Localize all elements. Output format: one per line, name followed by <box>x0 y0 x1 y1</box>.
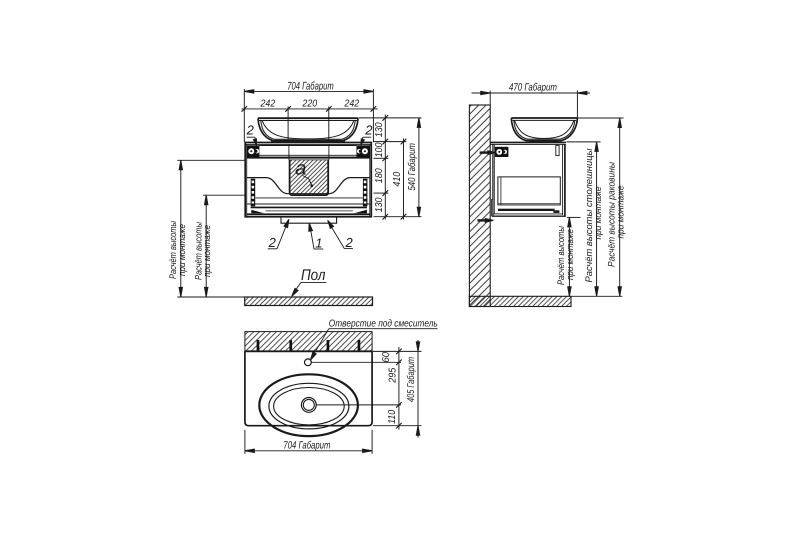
svg-text:при монтаже: при монтаже <box>202 225 213 277</box>
svg-text:2: 2 <box>344 235 353 250</box>
svg-text:704 Габарит: 704 Габарит <box>287 80 334 92</box>
svg-text:130: 130 <box>374 122 385 137</box>
svg-text:100: 100 <box>374 142 385 157</box>
svg-text:180: 180 <box>374 168 385 183</box>
svg-text:Пол: Пол <box>301 267 326 284</box>
svg-text:110: 110 <box>387 410 398 424</box>
svg-text:295: 295 <box>387 367 398 383</box>
svg-text:2: 2 <box>268 235 277 250</box>
svg-text:Отверстие под смеситель: Отверстие под смеситель <box>329 318 438 329</box>
svg-text:242: 242 <box>344 99 360 110</box>
svg-text:405 Габарит: 405 Габарит <box>406 357 417 402</box>
svg-text:410: 410 <box>392 171 403 186</box>
svg-text:704 Габарит: 704 Габарит <box>283 440 330 452</box>
svg-text:2: 2 <box>364 123 373 138</box>
svg-text:470 Габарит: 470 Габарит <box>509 82 557 94</box>
svg-text:при монтаже: при монтаже <box>177 224 188 276</box>
svg-text:540 Габарит: 540 Габарит <box>407 143 418 191</box>
svg-text:при монтаже: при монтаже <box>616 186 627 239</box>
svg-text:220: 220 <box>302 99 318 110</box>
svg-text:при монтаже: при монтаже <box>593 187 604 240</box>
svg-text:при монтаже: при монтаже <box>565 229 576 280</box>
svg-text:60: 60 <box>381 352 392 363</box>
svg-text:1: 1 <box>315 236 322 251</box>
svg-text:130: 130 <box>374 197 385 212</box>
svg-text:2: 2 <box>246 123 255 138</box>
svg-text:242: 242 <box>260 99 276 110</box>
